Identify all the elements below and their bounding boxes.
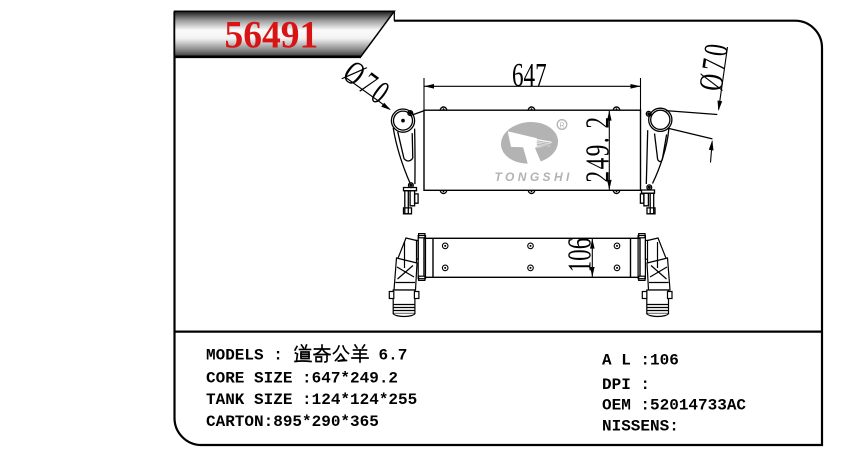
svg-text:6.7: 6.7: [379, 347, 408, 365]
svg-text:DPI :: DPI :: [602, 376, 650, 394]
svg-text:NISSENS:: NISSENS:: [602, 418, 679, 436]
svg-text:647: 647: [512, 57, 547, 94]
svg-text:249. 2: 249. 2: [579, 115, 616, 182]
svg-text:106: 106: [561, 238, 598, 273]
svg-text:TONGSHI: TONGSHI: [495, 170, 573, 184]
svg-text:CARTON:895*290*365: CARTON:895*290*365: [206, 413, 379, 431]
svg-text:OEM :52014733AC: OEM :52014733AC: [602, 397, 746, 415]
svg-text:Ø70: Ø70: [692, 38, 736, 93]
svg-text:56491: 56491: [225, 13, 319, 56]
svg-text:CORE SIZE :647*249.2: CORE SIZE :647*249.2: [206, 370, 398, 388]
svg-text:R: R: [560, 123, 565, 130]
svg-text:A L :106: A L :106: [602, 352, 679, 370]
svg-text:MODELS :: MODELS :: [206, 347, 283, 365]
svg-text:TANK SIZE :124*124*255: TANK SIZE :124*124*255: [206, 391, 417, 409]
